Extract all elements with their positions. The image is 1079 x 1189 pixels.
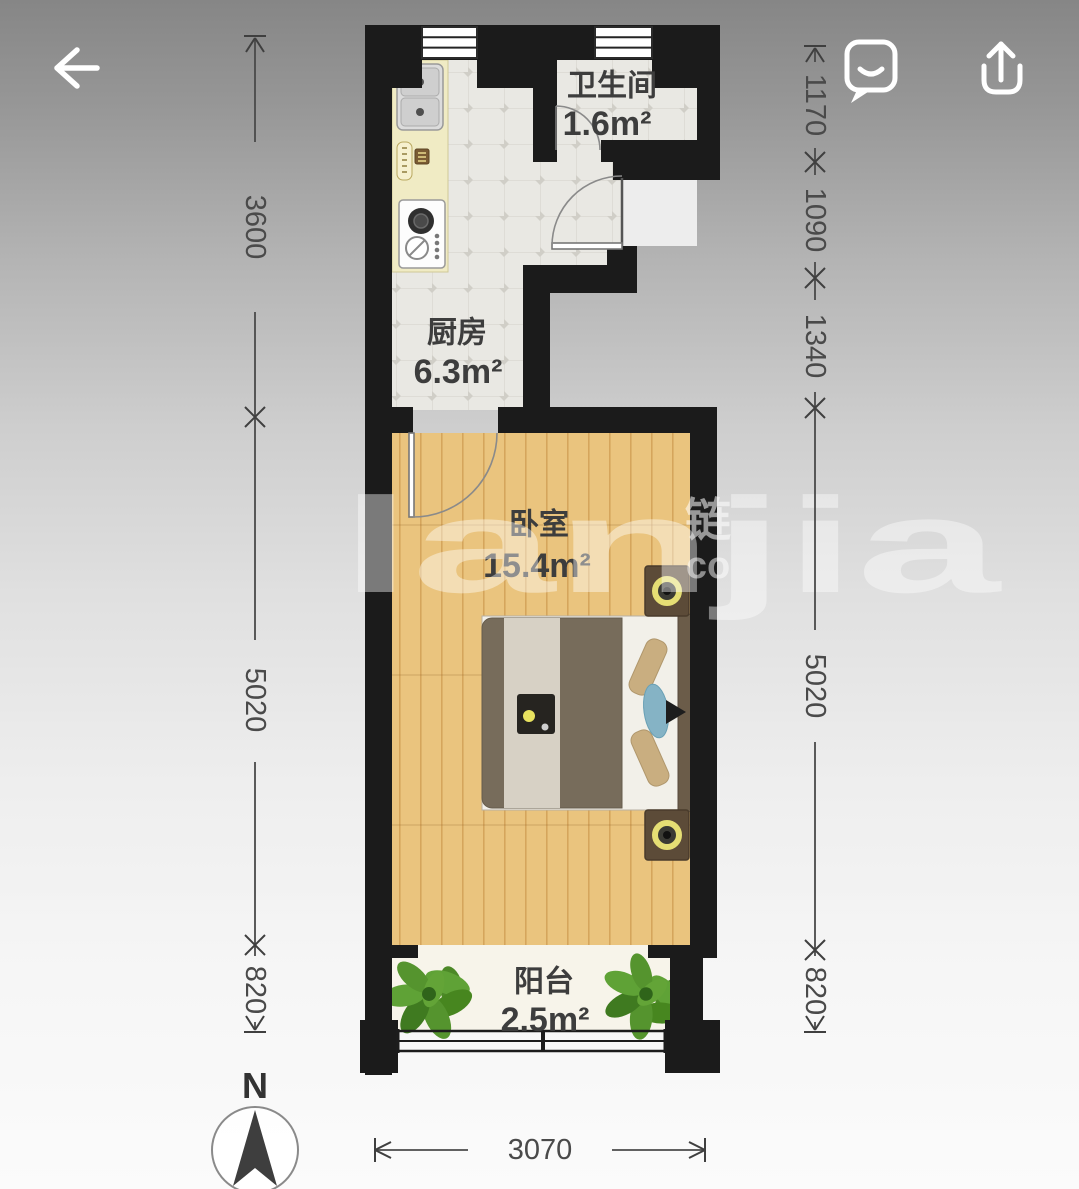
room-area-balcony: 2.5m² bbox=[501, 1001, 590, 1039]
watermark: lanjia 链 co bbox=[340, 470, 1002, 621]
dim-right-5020: 5020 bbox=[799, 654, 831, 719]
watermark-cjk: 链 bbox=[685, 494, 731, 546]
dim-bottom-3070: 3070 bbox=[508, 1134, 573, 1166]
room-label-bathroom: 卫生间 bbox=[567, 70, 657, 103]
room-area-bathroom: 1.6m² bbox=[563, 105, 652, 143]
watermark-suffix: co bbox=[686, 545, 730, 587]
floorplan-viewer-screen: 卫生间 1.6m² 厨房 6.3m² 卧室 15.4m² 阳台 2.5m² la… bbox=[0, 0, 1079, 1189]
back-icon[interactable] bbox=[57, 50, 97, 86]
dim-right-1340: 1340 bbox=[799, 314, 831, 379]
dim-left-820: 820 bbox=[239, 966, 271, 1014]
share-icon[interactable] bbox=[984, 44, 1020, 92]
dimension-line-bottom: 3070 bbox=[375, 1134, 705, 1166]
entry-threshold bbox=[622, 178, 697, 246]
feedback-icon[interactable] bbox=[847, 42, 895, 103]
dimension-line-left: 3600 5020 820 bbox=[239, 36, 271, 1032]
room-label-kitchen: 厨房 bbox=[427, 317, 487, 350]
room-label-balcony: 阳台 bbox=[514, 965, 574, 999]
window-top-left bbox=[422, 27, 477, 58]
compass-label: N bbox=[242, 1065, 268, 1106]
bed bbox=[482, 614, 691, 812]
kitchen-counter bbox=[392, 60, 448, 272]
dim-right-1170: 1170 bbox=[799, 74, 831, 136]
nightstand-bottom bbox=[645, 810, 689, 860]
window-top-right bbox=[595, 27, 652, 58]
dim-right-1090: 1090 bbox=[799, 188, 831, 253]
dim-left-5020: 5020 bbox=[239, 668, 271, 733]
floor-plan: 卫生间 1.6m² 厨房 6.3m² 卧室 15.4m² 阳台 2.5m² la… bbox=[0, 0, 1079, 1189]
room-area-kitchen: 6.3m² bbox=[414, 353, 503, 391]
dim-left-3600: 3600 bbox=[239, 195, 271, 260]
kitchen-stove bbox=[399, 200, 445, 268]
compass: N bbox=[212, 1065, 298, 1189]
watermark-text: lanjia bbox=[340, 470, 1002, 621]
dim-right-820: 820 bbox=[799, 967, 831, 1015]
bed-tray bbox=[517, 694, 555, 734]
